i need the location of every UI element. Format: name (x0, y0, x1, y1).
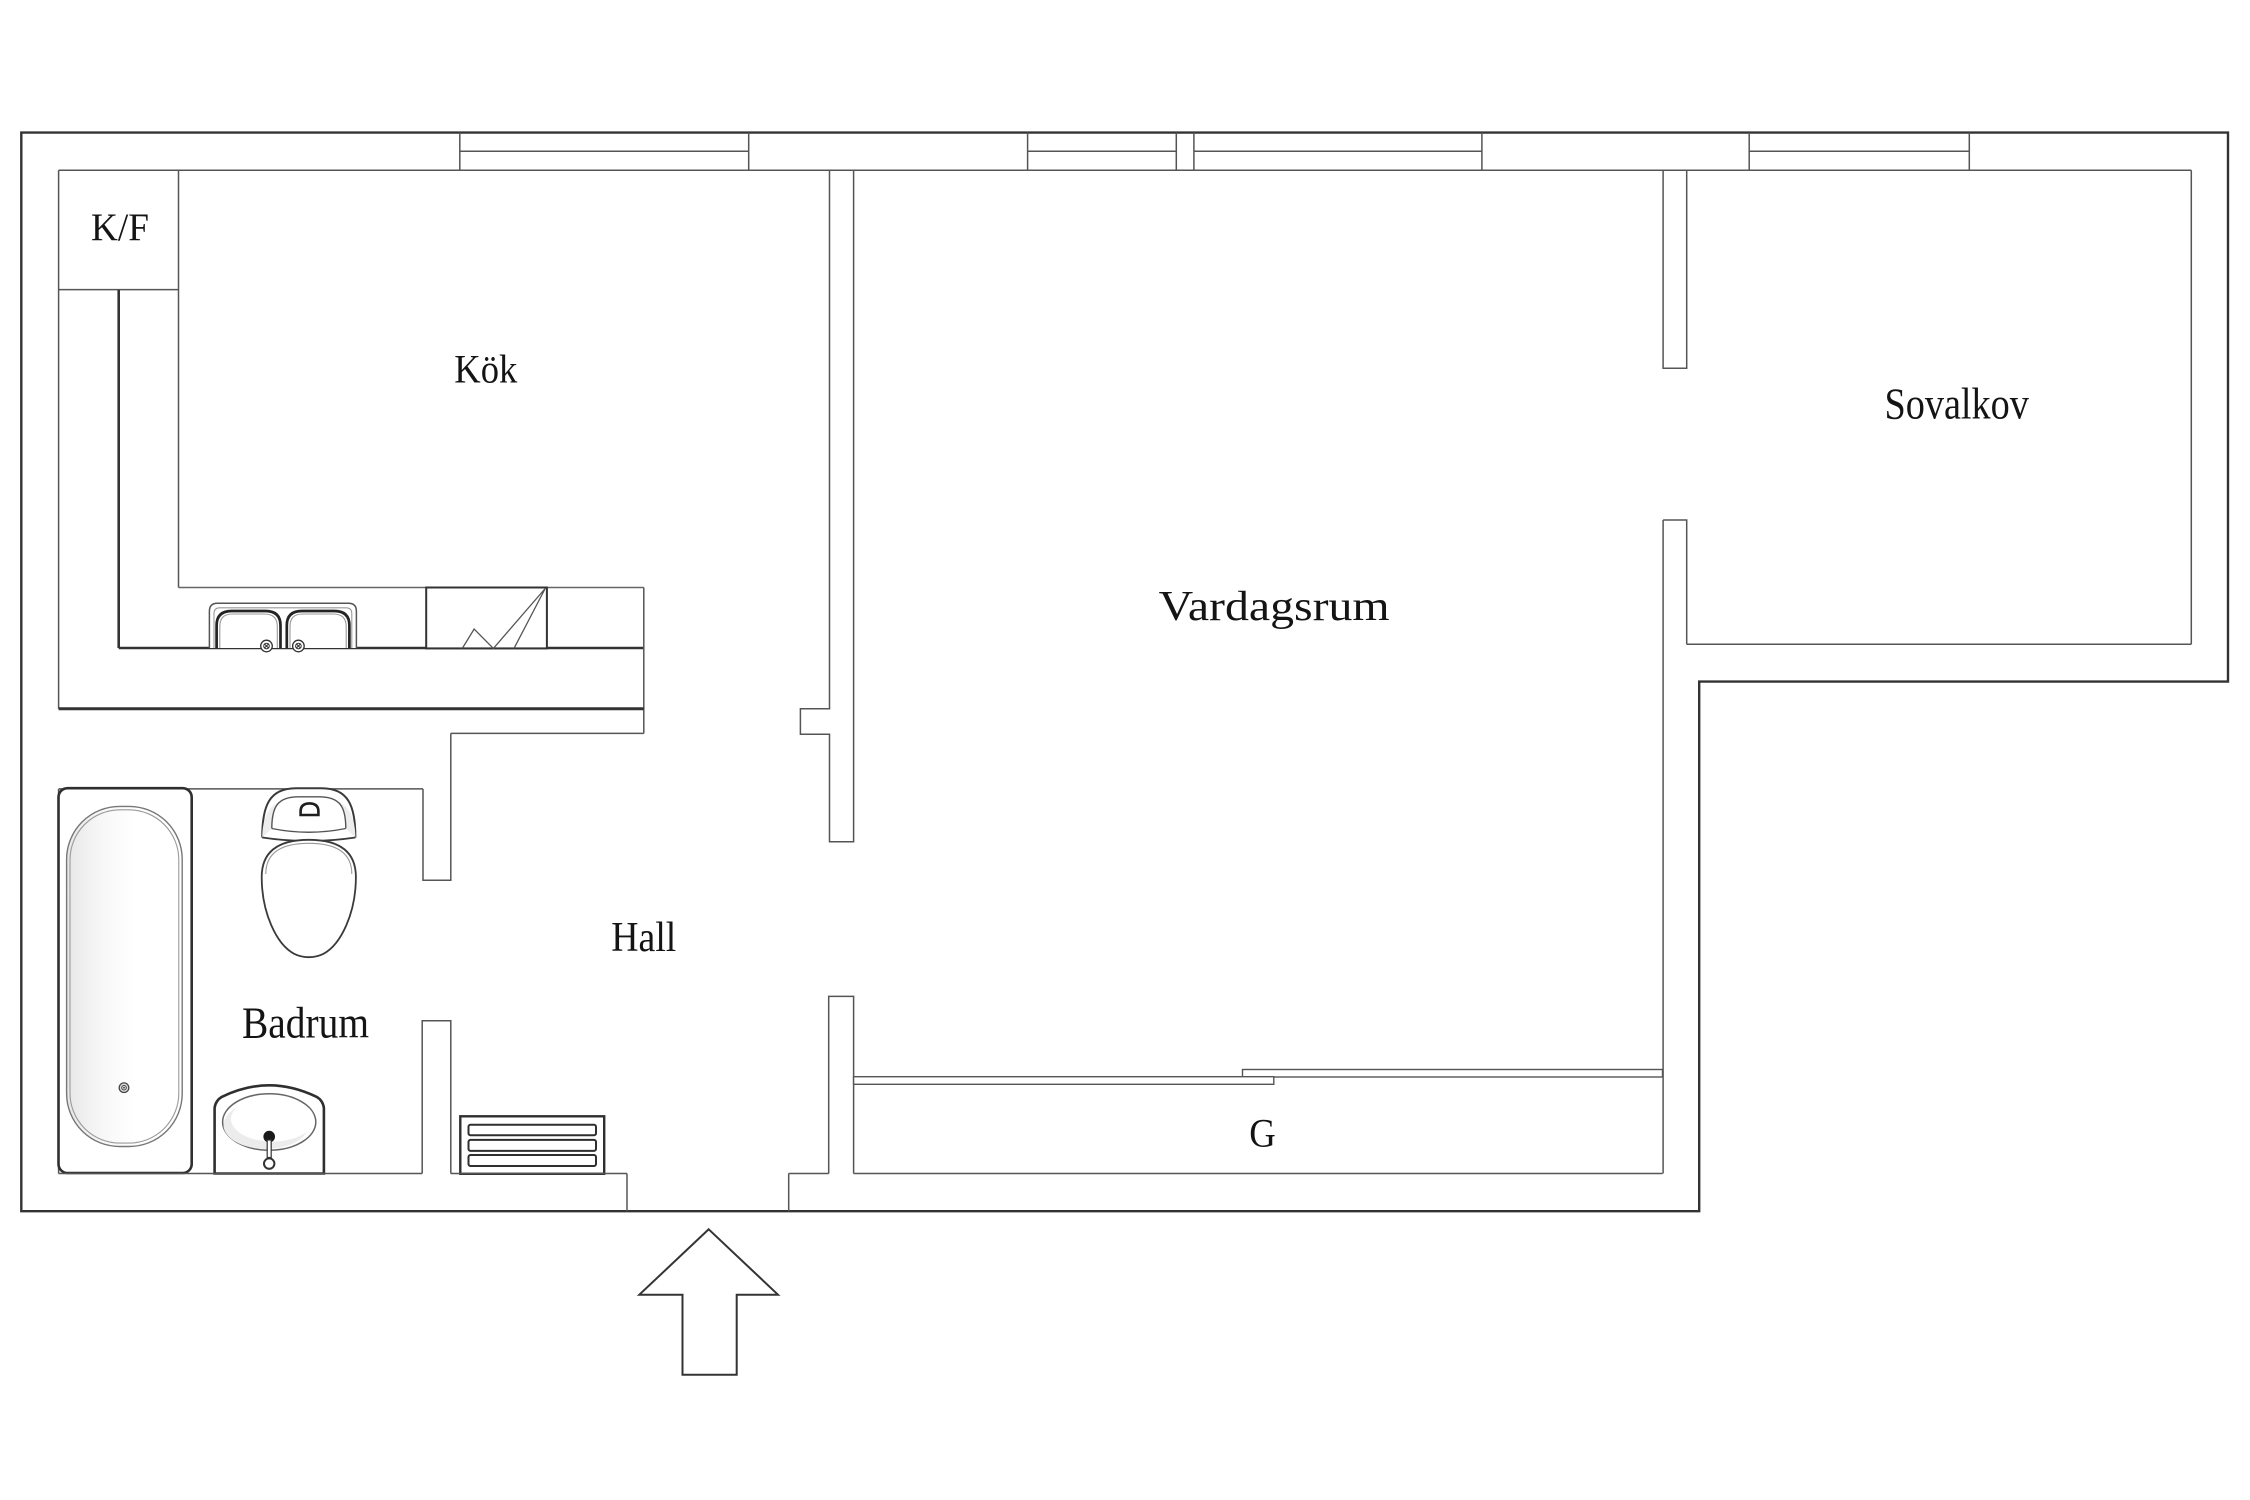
svg-text:Sovalkov: Sovalkov (1884, 379, 2029, 428)
svg-text:G: G (1249, 1110, 1276, 1155)
svg-text:Kök: Kök (454, 347, 517, 392)
svg-text:Vardagsrum: Vardagsrum (1159, 583, 1390, 630)
svg-text:Badrum: Badrum (242, 997, 369, 1047)
svg-text:Hall: Hall (611, 914, 676, 961)
svg-text:K/F: K/F (91, 205, 149, 249)
